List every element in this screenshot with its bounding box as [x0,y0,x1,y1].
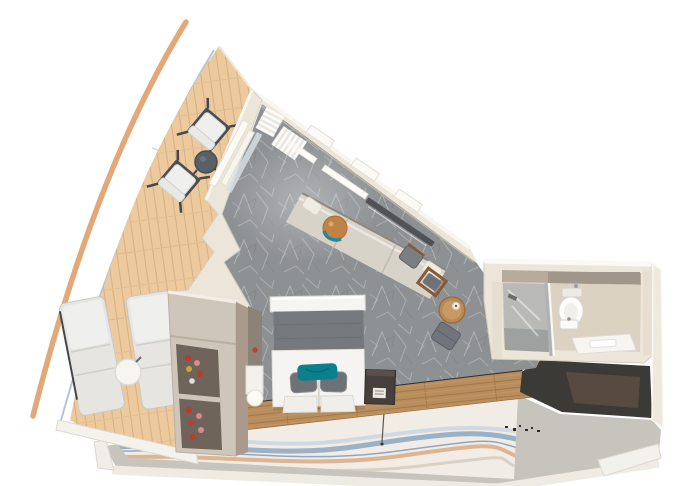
nightstand [246,366,263,406]
bed-headboard [273,310,364,351]
entry-door [566,372,640,408]
ottoman [323,216,347,240]
right-outer-wall [652,264,663,428]
nightstand-stool [247,390,263,406]
desk-round-table [439,297,465,323]
shower-floor [504,328,549,352]
bathroom-left-wall [492,282,502,359]
bed-accent-pillow [297,363,338,381]
bathroom-top-highlight [484,261,651,264]
floorplan-render [0,0,680,486]
toilet-flush-button [574,284,578,288]
bed-skirt-right [321,395,355,412]
toilet [559,284,583,325]
bathroom [484,261,653,363]
toilet-tank [562,288,582,297]
bed [270,295,367,413]
bed-skirt-left [283,396,317,413]
minibar-cube [364,369,395,404]
floorplan-svg [0,0,680,486]
shower [503,283,554,356]
bath-towel [590,339,616,347]
wardrobe [168,292,248,456]
sink-faucet [567,317,571,321]
minibar-label [373,388,386,398]
bathroom-right-wall [643,270,653,355]
bathroom-counter [548,272,640,284]
